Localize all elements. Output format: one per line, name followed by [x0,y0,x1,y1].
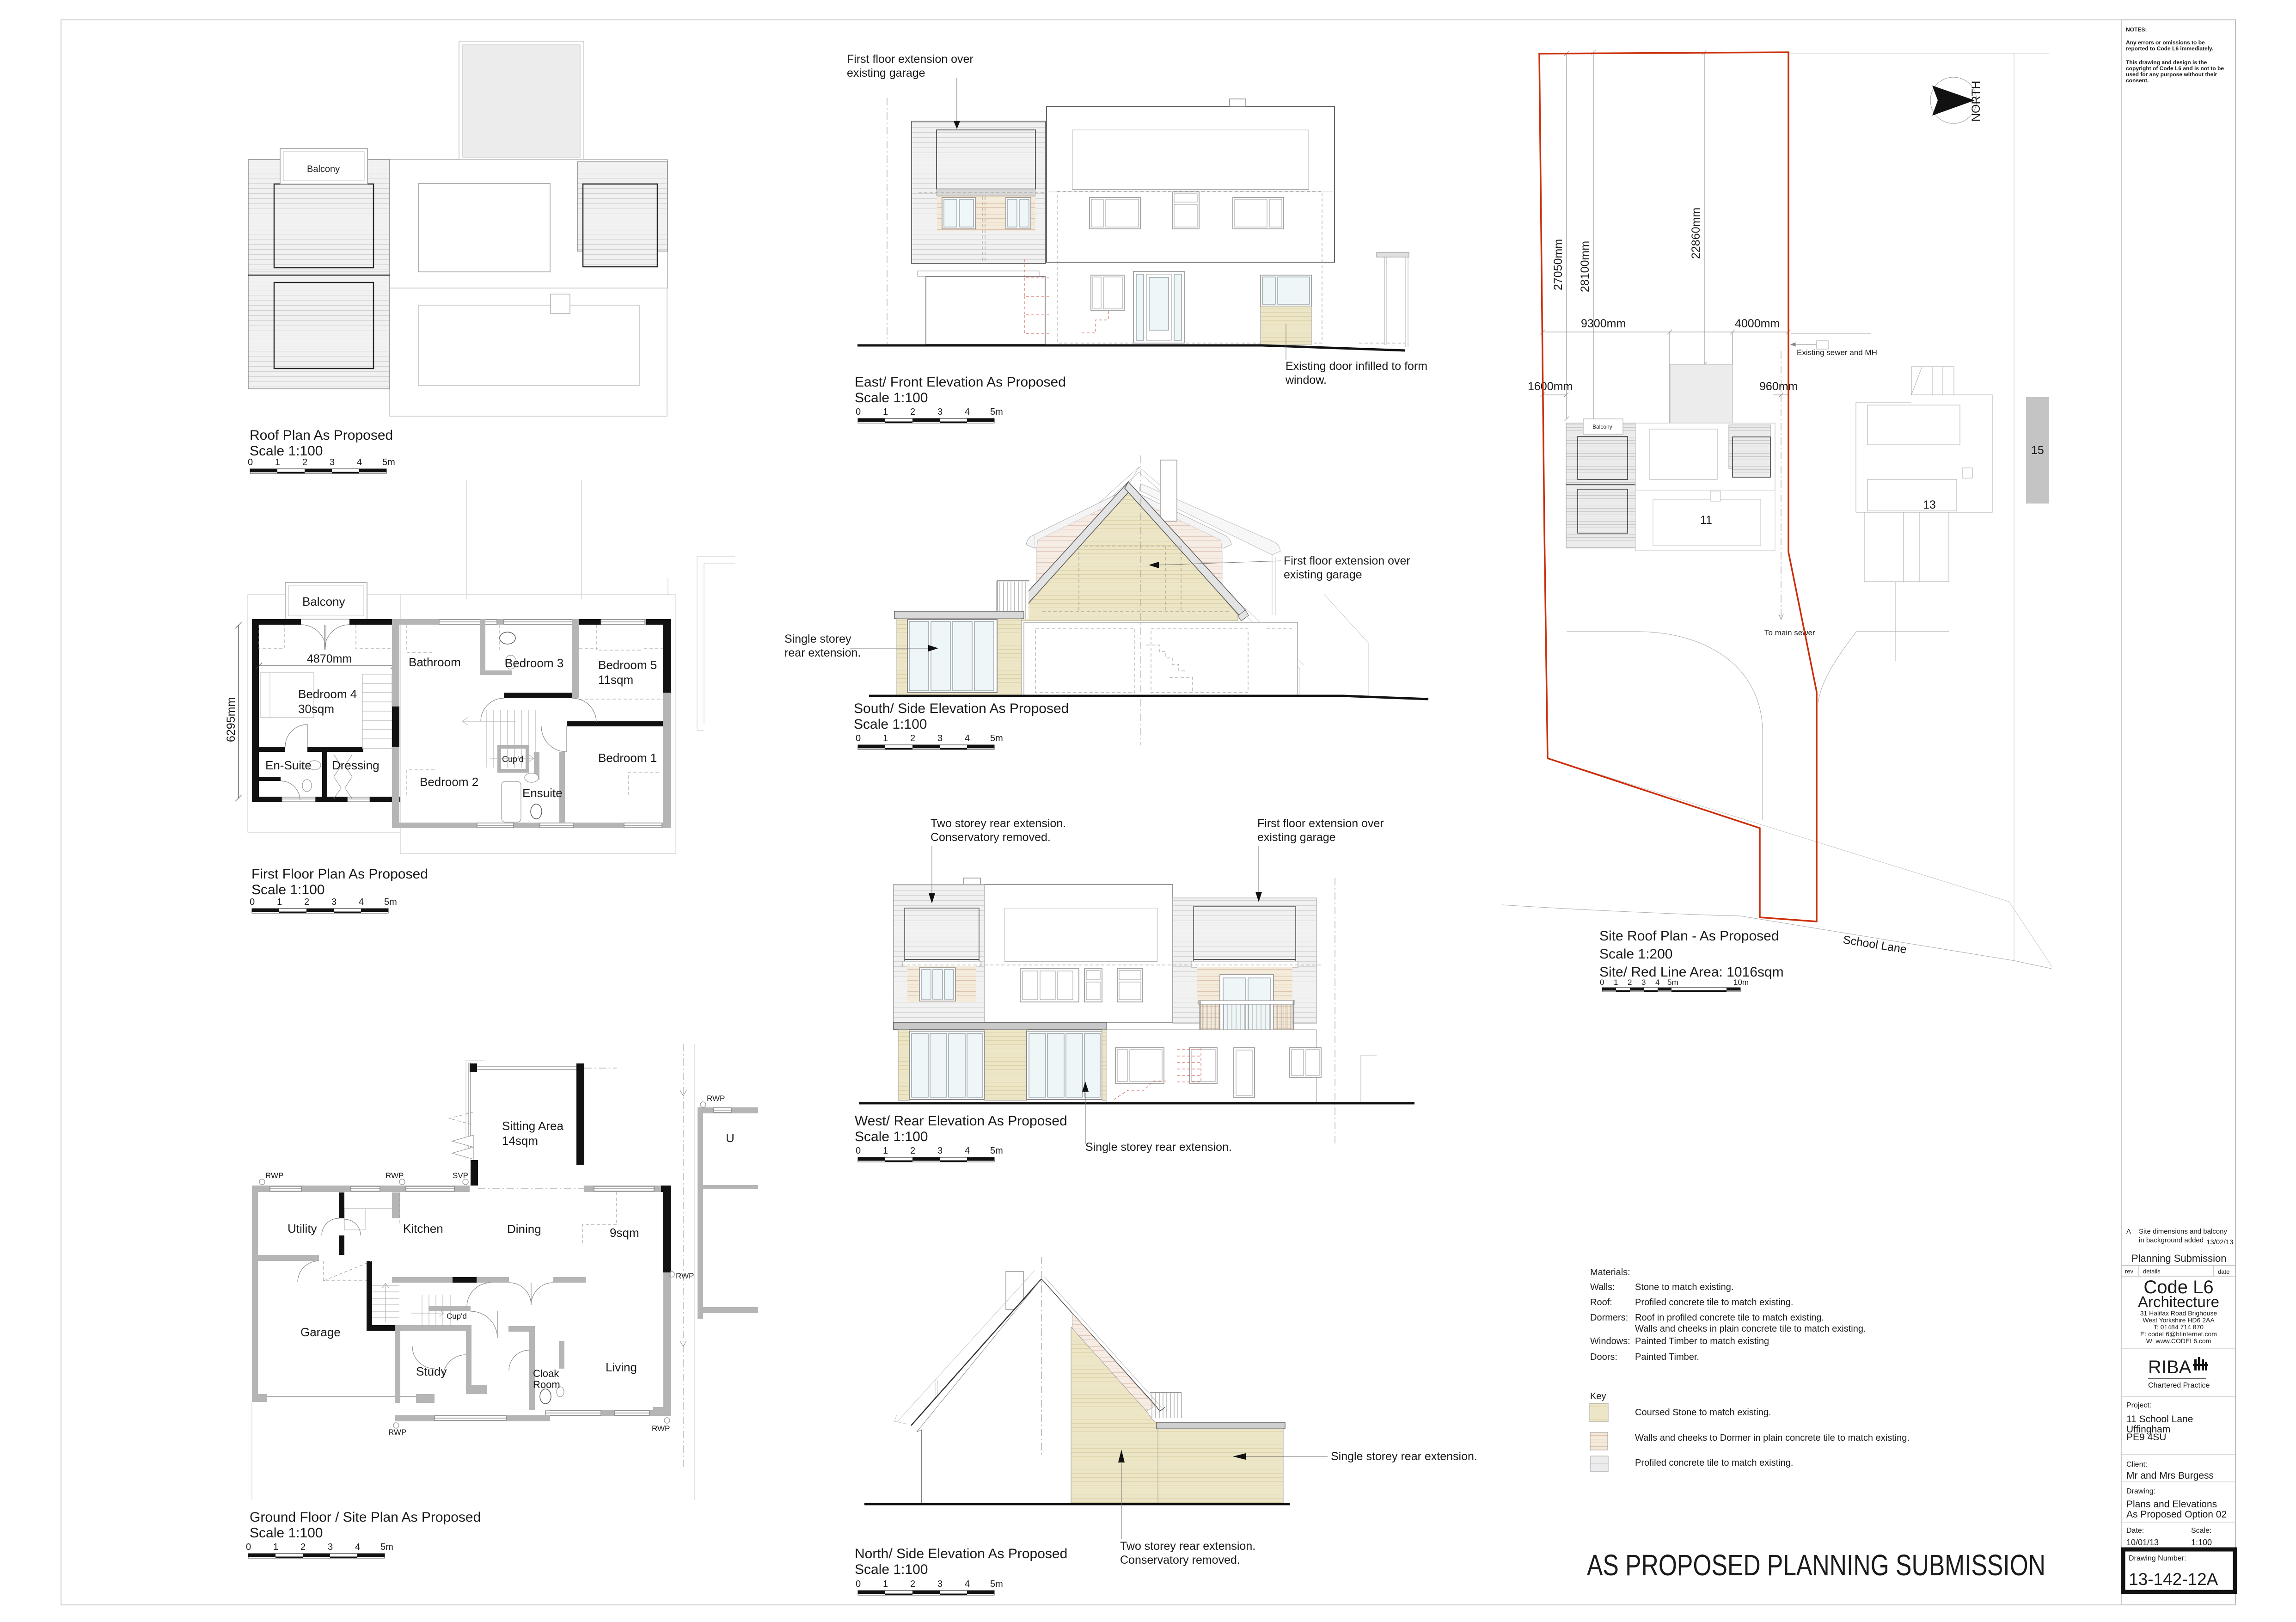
svg-text:Garage: Garage [300,1325,341,1339]
svg-text:existing garage: existing garage [1284,568,1362,581]
svg-text:10/01/13: 10/01/13 [2126,1538,2159,1547]
svg-text:A: A [2126,1228,2131,1235]
svg-text:13-142-12A: 13-142-12A [2129,1570,2218,1589]
svg-text:Walls and cheeks to Dormer in: Walls and cheeks to Dormer in plain conc… [1635,1433,1910,1443]
svg-text:Profiled concrete tile to matc: Profiled concrete tile to match existing… [1635,1297,1793,1308]
svg-text:Room: Room [533,1379,560,1390]
svg-text:Bathroom: Bathroom [409,655,461,669]
svg-text:1: 1 [1614,978,1618,987]
svg-text:Dressing: Dressing [332,758,380,772]
svg-text:Single storey rear extension.: Single storey rear extension. [1331,1450,1477,1463]
svg-text:Bedroom 2: Bedroom 2 [420,775,478,789]
svg-text:960mm: 960mm [1759,380,1798,393]
svg-text:RWP: RWP [707,1094,725,1103]
svg-text:Cup'd: Cup'd [502,755,523,764]
svg-text:To main sewer: To main sewer [1764,628,1815,637]
svg-text:RWP: RWP [388,1428,406,1437]
svg-text:Dining: Dining [507,1222,541,1236]
svg-text:Scale 1:100: Scale 1:100 [250,1525,323,1541]
svg-text:PE9 4SU: PE9 4SU [2126,1432,2166,1443]
svg-text:Bedroom 5: Bedroom 5 [598,658,657,672]
svg-text:4000mm: 4000mm [1735,317,1780,330]
svg-text:AS PROPOSED PLANNING SUBMISSIO: AS PROPOSED PLANNING SUBMISSION [1587,1548,2045,1582]
svg-text:Existing door infilled to form: Existing door infilled to form [1286,360,1427,373]
svg-text:Balcony: Balcony [302,595,345,608]
svg-text:Architecture: Architecture [2138,1293,2219,1310]
svg-text:Balcony: Balcony [307,164,340,174]
svg-text:NOTES:: NOTES: [2126,26,2147,33]
svg-text:11: 11 [1700,514,1712,527]
svg-text:Site dimensions and balcony: Site dimensions and balcony [2139,1228,2227,1235]
svg-text:13: 13 [1923,498,1936,511]
svg-text:Bedroom 1: Bedroom 1 [598,751,657,765]
svg-text:Single storey rear extension.: Single storey rear extension. [1085,1141,1232,1154]
svg-text:Two storey rear extension.: Two storey rear extension. [931,817,1066,830]
svg-text:window.: window. [1285,374,1327,387]
svg-text:RWP: RWP [386,1171,404,1180]
svg-text:Coursed Stone to match existin: Coursed Stone to match existing. [1635,1407,1771,1418]
svg-text:copyright of Code L6 and is no: copyright of Code L6 and is not to be [2126,65,2224,72]
svg-text:date: date [2218,1268,2229,1275]
svg-text:2: 2 [1628,978,1632,987]
svg-text:Profiled concrete tile to matc: Profiled concrete tile to match existing… [1635,1458,1793,1468]
svg-text:First floor extension over: First floor extension over [847,53,974,66]
svg-text:Ensuite: Ensuite [522,786,563,800]
svg-text:11sqm: 11sqm [598,673,633,687]
svg-text:Single storey: Single storey [784,633,851,645]
svg-text:Cup'd: Cup'd [447,1312,467,1321]
svg-text:Date:: Date: [2126,1527,2144,1535]
svg-text:Balcony: Balcony [1592,424,1612,430]
svg-text:Scale:: Scale: [2191,1527,2211,1535]
svg-text:Materials:: Materials: [1590,1267,1630,1278]
svg-text:RWP: RWP [652,1424,670,1433]
svg-text:Conservatory removed.: Conservatory removed. [1120,1554,1240,1567]
svg-text:Windows:: Windows: [1590,1336,1630,1346]
svg-text:reported to Code L6 immediatel: reported to Code L6 immediately. [2126,45,2213,52]
svg-text:Conservatory removed.: Conservatory removed. [931,831,1051,844]
svg-text:Painted Timber to match existi: Painted Timber to match existing [1635,1336,1769,1346]
svg-text:RWP: RWP [265,1171,283,1180]
svg-text:SVP: SVP [453,1171,468,1180]
svg-text:Utility: Utility [288,1222,317,1235]
svg-text:North/ Side Elevation As Propo: North/ Side Elevation As Proposed [855,1546,1067,1561]
svg-text:Key: Key [1590,1391,1606,1401]
svg-text:Client:: Client: [2126,1461,2147,1468]
svg-text:15: 15 [2031,444,2044,457]
svg-text:First Floor Plan As Proposed: First Floor Plan As Proposed [251,866,428,882]
svg-text:31 Halifax Road Brighouse: 31 Halifax Road Brighouse [2140,1309,2217,1317]
svg-text:Walls and cheeks in plain conc: Walls and cheeks in plain concrete tile … [1635,1324,1866,1334]
svg-text:Doors:: Doors: [1590,1352,1617,1362]
svg-text:0: 0 [1600,978,1604,987]
svg-text:Site/ Red Line Area: 1016sqm: Site/ Red Line Area: 1016sqm [1599,965,1784,980]
svg-text:9sqm: 9sqm [610,1226,639,1240]
svg-text:Kitchen: Kitchen [403,1222,443,1235]
svg-text:RIBA: RIBA [2148,1357,2192,1377]
svg-text:13/02/13: 13/02/13 [2206,1238,2233,1246]
svg-text:30sqm: 30sqm [298,702,334,716]
svg-text:used for any purpose without t: used for any purpose without their [2126,71,2217,78]
svg-text:South/ Side Elevation As Propo: South/ Side Elevation As Proposed [854,701,1069,716]
svg-text:Scale 1:100: Scale 1:100 [855,390,928,405]
svg-text:Dormers:: Dormers: [1590,1313,1628,1323]
svg-text:Painted Timber.: Painted Timber. [1635,1352,1699,1362]
svg-text:West Yorkshire HD6 2AA: West Yorkshire HD6 2AA [2143,1316,2215,1324]
svg-text:4: 4 [1655,978,1659,987]
svg-text:W: www.CODEL6.com: W: www.CODEL6.com [2146,1337,2211,1345]
svg-text:Living: Living [606,1360,637,1374]
svg-text:28100mm: 28100mm [1579,241,1592,292]
svg-text:Planning Submission: Planning Submission [2131,1253,2226,1264]
svg-text:Bedroom 3: Bedroom 3 [505,656,563,670]
svg-text:T: 01484 714 870: T: 01484 714 870 [2154,1323,2204,1331]
svg-text:E: codeL6@btinternet.com: E: codeL6@btinternet.com [2140,1330,2217,1338]
svg-text:in background added: in background added [2139,1236,2204,1244]
svg-text:existing garage: existing garage [1257,831,1336,844]
svg-text:NORTH: NORTH [1970,81,1983,122]
svg-text:En-Suite: En-Suite [265,758,312,772]
svg-text:Bedroom 4: Bedroom 4 [298,687,357,701]
svg-text:Any errors or omissions to be: Any errors or omissions to be [2126,39,2205,46]
svg-text:Scale 1:200: Scale 1:200 [1599,946,1672,962]
svg-text:U: U [726,1131,735,1145]
svg-text:27050mm: 27050mm [1552,239,1565,290]
svg-text:Drawing:: Drawing: [2126,1487,2155,1495]
svg-text:3: 3 [1641,978,1646,987]
svg-text:Project:: Project: [2126,1401,2151,1409]
svg-text:existing garage: existing garage [847,67,925,80]
svg-text:Walls:: Walls: [1590,1282,1615,1292]
svg-text:rev: rev [2125,1268,2134,1275]
svg-text:1600mm: 1600mm [1528,380,1573,393]
svg-text:Chartered Practice: Chartered Practice [2148,1382,2210,1389]
svg-text:RWP: RWP [676,1272,694,1280]
svg-text:details: details [2143,1268,2161,1275]
svg-text:consent.: consent. [2126,77,2149,84]
svg-text:Roof Plan As Proposed: Roof Plan As Proposed [250,428,393,443]
svg-text:Cloak: Cloak [533,1368,559,1379]
svg-text:East/ Front Elevation As Propo: East/ Front Elevation As Proposed [855,375,1066,390]
svg-text:11 School Lane: 11 School Lane [2126,1414,2193,1425]
svg-text:Scale 1:100: Scale 1:100 [855,1129,928,1144]
svg-text:Study: Study [416,1364,447,1378]
svg-text:4870mm: 4870mm [307,652,352,665]
svg-text:5m: 5m [1667,978,1678,987]
svg-text:10m: 10m [1733,978,1749,987]
svg-text:As Proposed Option 02: As Proposed Option 02 [2126,1509,2227,1520]
svg-text:First floor extension over: First floor extension over [1284,554,1410,567]
svg-text:Scale 1:100: Scale 1:100 [854,717,927,732]
svg-text:Site Roof Plan - As Proposed: Site Roof Plan - As Proposed [1599,928,1779,944]
svg-text:First floor extension over: First floor extension over [1257,817,1384,830]
svg-text:Drawing Number:: Drawing Number: [2129,1554,2186,1562]
svg-text:West/ Rear Elevation As Propos: West/ Rear Elevation As Proposed [855,1113,1067,1129]
svg-text:Existing sewer and MH: Existing sewer and MH [1797,348,1877,357]
svg-text:Roof:: Roof: [1590,1297,1612,1308]
svg-text:Sitting Area: Sitting Area [502,1119,564,1133]
svg-text:Mr and Mrs Burgess: Mr and Mrs Burgess [2126,1470,2214,1481]
svg-text:Two storey rear extension.: Two storey rear extension. [1120,1540,1255,1553]
svg-text:14sqm: 14sqm [502,1134,538,1148]
svg-text:22860mm: 22860mm [1690,208,1702,259]
svg-text:Scale 1:100: Scale 1:100 [250,443,323,459]
svg-text:Stone to match existing.: Stone to match existing. [1635,1282,1733,1292]
svg-text:6295mm: 6295mm [225,697,238,742]
svg-text:1:100: 1:100 [2191,1538,2212,1547]
svg-text:Scale 1:100: Scale 1:100 [855,1562,928,1577]
svg-text:Plans and Elevations: Plans and Elevations [2126,1499,2217,1510]
svg-text:Ground Floor / Site Plan As Pr: Ground Floor / Site Plan As Proposed [250,1510,481,1525]
svg-text:rear extension.: rear extension. [784,646,861,659]
svg-text:Roof in profiled concrete tile: Roof in profiled concrete tile to match … [1635,1313,1824,1323]
svg-text:9300mm: 9300mm [1581,317,1626,330]
svg-text:This drawing and design is the: This drawing and design is the [2126,59,2207,66]
svg-text:Scale 1:100: Scale 1:100 [251,882,325,897]
